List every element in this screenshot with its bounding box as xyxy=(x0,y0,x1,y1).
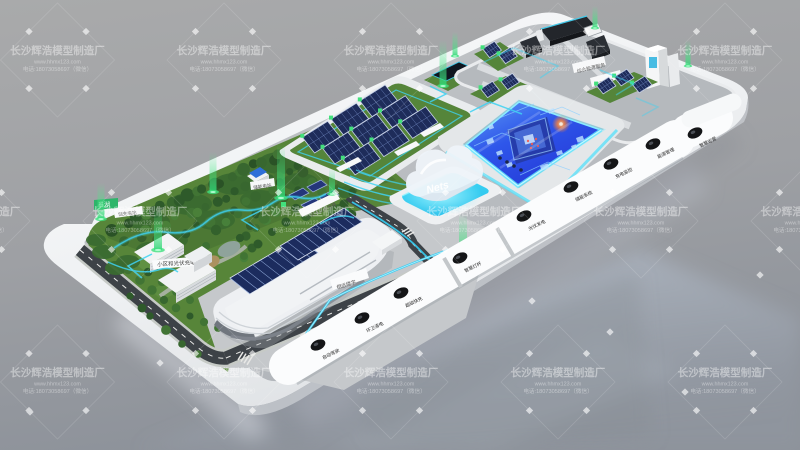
svg-text:长沙辉浩模型制造厂: 长沙辉浩模型制造厂 xyxy=(678,44,773,57)
svg-text:www.hhmx123.com: www.hhmx123.com xyxy=(33,382,81,388)
svg-text:www.hhmx123.com: www.hhmx123.com xyxy=(116,221,164,227)
svg-text:长沙辉浩模型制造厂: 长沙辉浩模型制造厂 xyxy=(0,205,21,218)
svg-text:电话:18073058697（微信）: 电话:18073058697（微信） xyxy=(690,387,759,395)
svg-text:www.hhmx123.com: www.hhmx123.com xyxy=(200,382,248,388)
svg-text:www.hhmx123.com: www.hhmx123.com xyxy=(617,221,665,227)
svg-text:长沙辉浩模型制造厂: 长沙辉浩模型制造厂 xyxy=(10,44,105,57)
svg-text:电话:18073058697（微信）: 电话:18073058697（微信） xyxy=(272,226,341,234)
svg-text:长沙辉浩模型制造厂: 长沙辉浩模型制造厂 xyxy=(344,44,439,57)
svg-text:电话:18073058697（微信）: 电话:18073058697（微信） xyxy=(23,65,92,73)
svg-text:电话:18073058697（微信）: 电话:18073058697（微信） xyxy=(189,65,258,73)
svg-text:长沙辉浩模型制造厂: 长沙辉浩模型制造厂 xyxy=(511,366,606,379)
svg-text:电话:18073058697（微信）: 电话:18073058697（微信） xyxy=(439,226,508,234)
svg-text:电话:18073058697（微信）: 电话:18073058697（微信） xyxy=(105,226,174,234)
svg-text:长沙辉浩模型制造厂: 长沙辉浩模型制造厂 xyxy=(761,205,800,218)
svg-text:长沙辉浩模型制造厂: 长沙辉浩模型制造厂 xyxy=(93,205,188,218)
svg-text:www.hhmx123.com: www.hhmx123.com xyxy=(784,221,800,227)
svg-text:www.hhmx123.com: www.hhmx123.com xyxy=(367,60,415,66)
svg-text:电话:18073058697（微信）: 电话:18073058697（微信） xyxy=(606,226,675,234)
svg-text:www.hhmx123.com: www.hhmx123.com xyxy=(450,221,498,227)
svg-text:电话:18073058697（微信）: 电话:18073058697（微信） xyxy=(523,65,592,73)
svg-text:电话:18073058697（微信）: 电话:18073058697（微信） xyxy=(523,387,592,395)
svg-text:长沙辉浩模型制造厂: 长沙辉浩模型制造厂 xyxy=(10,366,105,379)
svg-text:长沙辉浩模型制造厂: 长沙辉浩模型制造厂 xyxy=(511,44,606,57)
svg-text:电话:18073058697（微信）: 电话:18073058697（微信） xyxy=(690,65,759,73)
svg-text:www.hhmx123.com: www.hhmx123.com xyxy=(534,382,582,388)
svg-text:电话:18073058697（微信）: 电话:18073058697（微信） xyxy=(773,226,800,234)
svg-text:长沙辉浩模型制造厂: 长沙辉浩模型制造厂 xyxy=(177,44,272,57)
svg-text:www.hhmx123.com: www.hhmx123.com xyxy=(367,382,415,388)
svg-text:www.hhmx123.com: www.hhmx123.com xyxy=(200,60,248,66)
svg-text:长沙辉浩模型制造厂: 长沙辉浩模型制造厂 xyxy=(344,366,439,379)
svg-text:www.hhmx123.com: www.hhmx123.com xyxy=(534,60,582,66)
svg-text:长沙辉浩模型制造厂: 长沙辉浩模型制造厂 xyxy=(177,366,272,379)
svg-text:长沙辉浩模型制造厂: 长沙辉浩模型制造厂 xyxy=(594,205,689,218)
svg-text:长沙辉浩模型制造厂: 长沙辉浩模型制造厂 xyxy=(260,205,355,218)
svg-text:www.hhmx123.com: www.hhmx123.com xyxy=(33,60,81,66)
svg-text:电话:18073058697（微信）: 电话:18073058697（微信） xyxy=(356,65,425,73)
svg-text:电话:18073058697（微信）: 电话:18073058697（微信） xyxy=(189,387,258,395)
svg-text:电话:18073058697（微信）: 电话:18073058697（微信） xyxy=(356,387,425,395)
svg-text:www.hhmx123.com: www.hhmx123.com xyxy=(701,382,749,388)
svg-text:长沙辉浩模型制造厂: 长沙辉浩模型制造厂 xyxy=(678,366,773,379)
svg-text:电话:18073058697（微信）: 电话:18073058697（微信） xyxy=(0,226,8,234)
svg-text:www.hhmx123.com: www.hhmx123.com xyxy=(283,221,331,227)
svg-text:www.hhmx123.com: www.hhmx123.com xyxy=(701,60,749,66)
svg-text:电话:18073058697（微信）: 电话:18073058697（微信） xyxy=(23,387,92,395)
svg-text:长沙辉浩模型制造厂: 长沙辉浩模型制造厂 xyxy=(427,205,522,218)
